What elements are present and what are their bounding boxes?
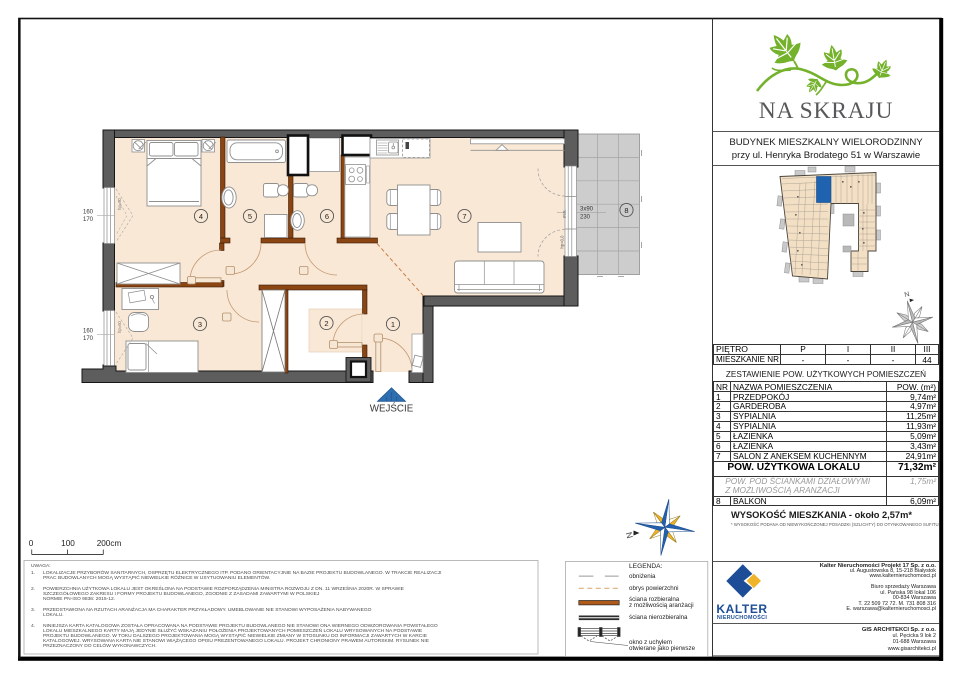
svg-text:100: 100 [61, 539, 75, 548]
svg-text:8: 8 [624, 206, 628, 215]
svg-text:230: 230 [580, 215, 591, 221]
svg-text:FIX: FIX [562, 209, 568, 217]
svg-text:N: N [624, 531, 635, 540]
svg-text:3x90: 3x90 [580, 207, 594, 213]
svg-text:5: 5 [248, 212, 252, 221]
svg-text:1: 1 [391, 320, 395, 329]
svg-text:170: 170 [83, 336, 94, 342]
svg-text:160: 160 [83, 210, 94, 216]
svg-text:170: 170 [83, 217, 94, 223]
svg-text:hp=60: hp=60 [117, 197, 122, 209]
svg-text:200cm: 200cm [97, 539, 122, 548]
svg-text:6: 6 [325, 212, 329, 221]
svg-text:N: N [904, 291, 911, 299]
svg-text:2: 2 [324, 319, 328, 328]
svg-text:3: 3 [198, 320, 202, 329]
svg-text:4: 4 [199, 212, 203, 221]
svg-text:hp=60: hp=60 [117, 320, 122, 332]
svg-text:0: 0 [29, 539, 34, 548]
svg-text:160: 160 [83, 329, 94, 335]
svg-text:hp=0,0: hp=0,0 [560, 235, 565, 249]
svg-text:7: 7 [462, 212, 466, 221]
svg-text:WEJŚCIE: WEJŚCIE [370, 403, 414, 415]
